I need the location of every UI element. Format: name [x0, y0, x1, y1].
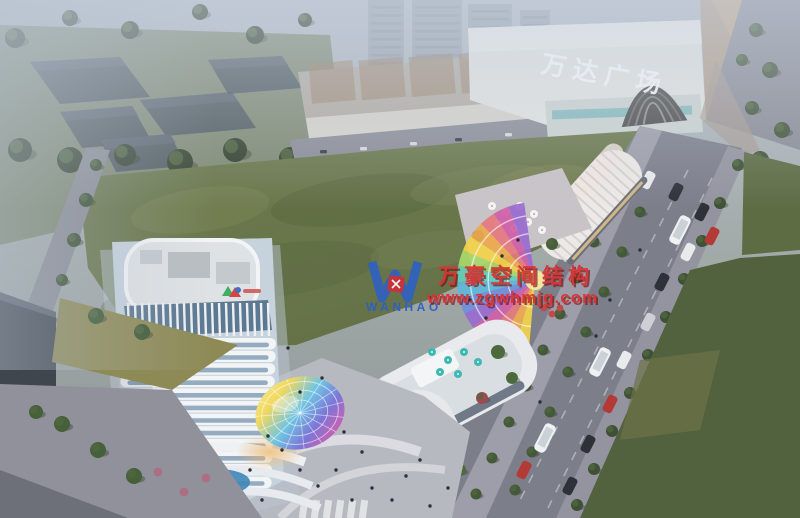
atmospheric-haze-left — [0, 0, 215, 370]
watermark-url: www.zgwhmjg.com — [426, 288, 598, 307]
rendering-image: 万达广场 — [0, 0, 800, 518]
scene-canvas: 万达广场 — [0, 0, 800, 518]
watermark-company: 万豪空间结构 — [437, 264, 594, 288]
